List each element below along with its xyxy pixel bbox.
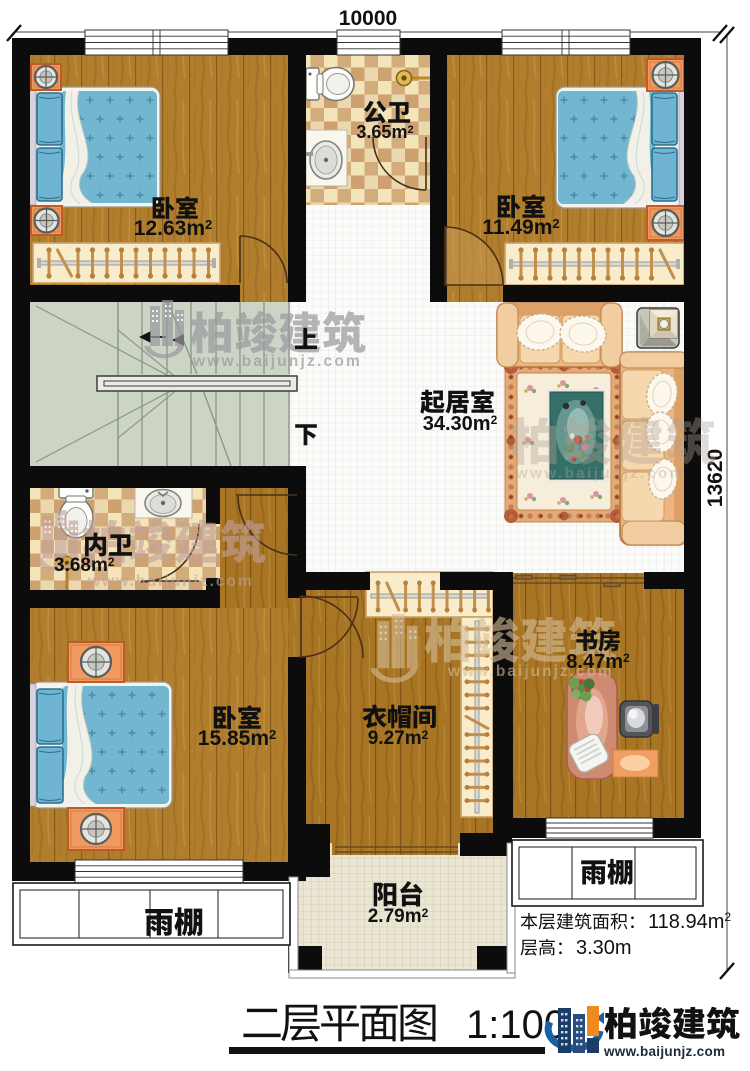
svg-text:15.85m2: 15.85m2 [198,727,276,750]
svg-text:118.94m2: 118.94m2 [648,910,731,933]
svg-text:9.27m2: 9.27m2 [368,728,429,749]
svg-text:11.49m2: 11.49m2 [482,216,559,239]
svg-text:www.baijunjz.com: www.baijunjz.com [515,465,685,482]
svg-text:34.30m2: 34.30m2 [423,413,498,435]
svg-text:2.79m2: 2.79m2 [368,906,429,927]
svg-text:www.baijunjz.com: www.baijunjz.com [603,1044,725,1059]
svg-text:www.baijunjz.com: www.baijunjz.com [87,573,254,590]
svg-text:3.65m2: 3.65m2 [356,122,413,142]
svg-text:10000: 10000 [339,7,397,30]
svg-text:8.47m2: 8.47m2 [566,651,630,673]
svg-text:www.baijunjz.com: www.baijunjz.com [192,353,362,370]
svg-text:3.68m2: 3.68m2 [54,555,115,576]
svg-text:3.30m: 3.30m [576,937,632,959]
svg-text:12.63m2: 12.63m2 [134,217,212,240]
